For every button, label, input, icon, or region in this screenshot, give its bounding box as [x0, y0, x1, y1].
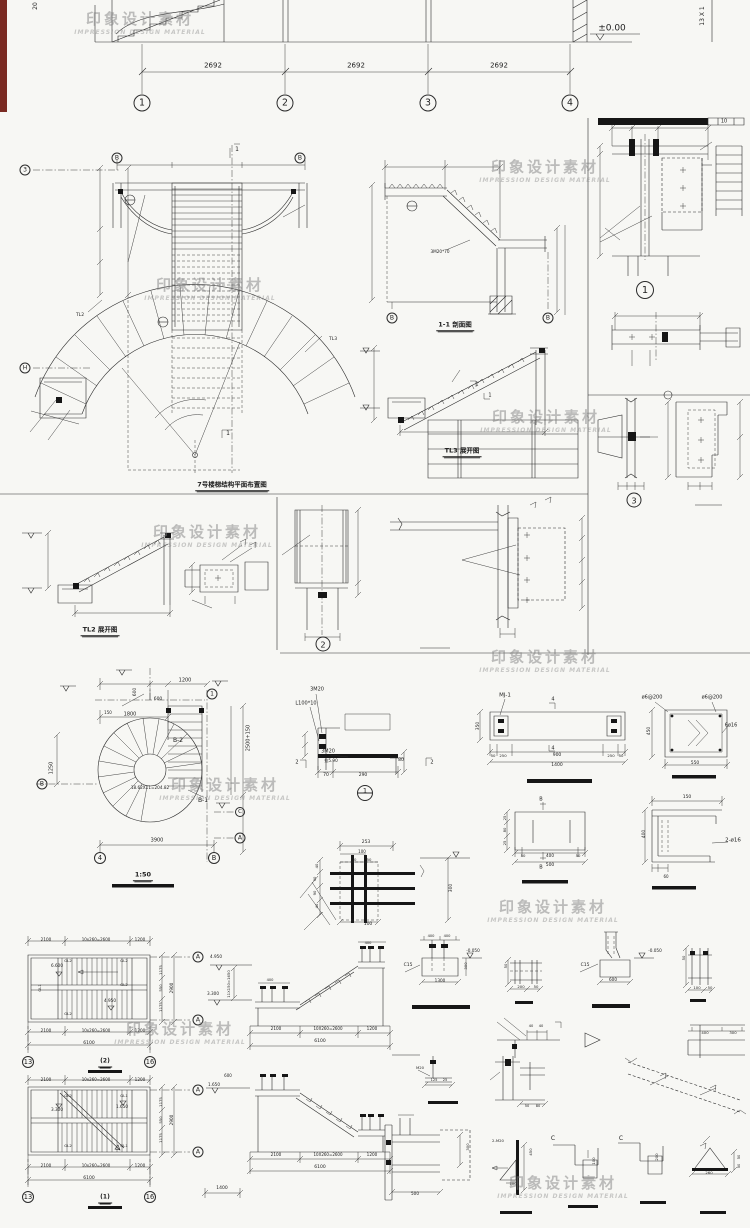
- dim-label: 300: [466, 1143, 470, 1150]
- grid-bubble: H: [20, 363, 31, 374]
- dim-label: 100: [509, 1182, 516, 1186]
- dim-label: -0.050: [466, 949, 480, 953]
- dim-label: 2-ø16: [725, 838, 741, 844]
- dim-label: 50: [504, 964, 508, 969]
- grid-bubble: B: [387, 313, 398, 324]
- dim-label: 450: [648, 727, 653, 736]
- grid-bubble: B: [112, 153, 123, 164]
- dim-label: 10x260=2600: [82, 1029, 111, 1033]
- dim-label: 1200: [179, 679, 192, 684]
- view-caption: TL2 展开图: [81, 626, 120, 636]
- dim-label: 2100: [41, 1029, 52, 1033]
- dim-label: 100: [358, 850, 366, 854]
- dim-label: GL1: [38, 984, 42, 991]
- dim-label: 2100: [41, 1078, 52, 1082]
- dim-label: 10X260=2600: [314, 1153, 343, 1157]
- connection-plan-detail: [612, 312, 740, 366]
- grid-bubble: 3: [420, 95, 437, 112]
- dim-label: 70: [323, 774, 329, 779]
- grid-bubble: 4: [94, 852, 106, 864]
- dim-label: 150: [683, 796, 692, 801]
- dim-label: 2692: [490, 63, 508, 70]
- dim-label: 1175: [159, 1002, 163, 1012]
- dim-label: 50: [352, 858, 357, 862]
- dim-label: 13 X 1: [700, 6, 706, 25]
- bracket-detail: [300, 694, 432, 778]
- dim-label: 2: [430, 761, 433, 766]
- dim-label: 300: [464, 962, 468, 969]
- view-caption: (1): [98, 1195, 112, 1204]
- view-caption: 7号楼梯结构平面布置图: [195, 481, 269, 491]
- grid-bubble: A: [193, 1147, 204, 1158]
- dim-label: 50: [738, 1155, 742, 1160]
- stair-plan-view: [30, 144, 355, 475]
- dim-label: 50: [682, 956, 686, 961]
- dim-label: 400: [701, 1031, 708, 1035]
- dim-label: GL2: [64, 1144, 71, 1148]
- dim-label: 4.950: [104, 999, 116, 1003]
- dim-label: 6.600: [51, 964, 63, 968]
- dim-label: 1175: [159, 965, 163, 975]
- mj1-embedded-plate: [477, 699, 628, 783]
- dim-label: B-1: [198, 798, 208, 804]
- grid-bubble: 1: [207, 689, 218, 700]
- dim-label: 400: [428, 935, 435, 939]
- dim-label: 2: [295, 761, 298, 766]
- dim-label: 2692: [204, 63, 222, 70]
- dim-label: 1: [488, 394, 491, 399]
- grid-bubble: 4: [562, 95, 579, 112]
- stair-plan-upper: [25, 936, 190, 1073]
- dim-label: 600: [609, 978, 617, 982]
- dim-label: 40: [315, 904, 319, 909]
- dim-label: 25: [443, 1079, 448, 1083]
- dim-label: 400: [643, 830, 648, 839]
- grid-bubble: C: [235, 807, 245, 817]
- dim-label: 10X260=2600: [314, 1027, 343, 1031]
- dim-label: 500: [546, 864, 555, 869]
- dim-label: -0.050: [648, 949, 662, 953]
- stair-section-lower: [202, 1074, 393, 1198]
- dim-label: 1250: [50, 762, 55, 775]
- dim-label: 550: [691, 762, 700, 767]
- dim-label: 400: [444, 935, 451, 939]
- dim-label: GL2: [64, 1094, 71, 1098]
- dim-label: 1200: [367, 1027, 378, 1031]
- dim-label: 600: [154, 698, 163, 703]
- dim-label: 80: [398, 759, 404, 764]
- grid-bubble: 16: [144, 1191, 156, 1203]
- dim-label: 550: [159, 984, 163, 991]
- dim-label: 2900: [170, 983, 174, 994]
- dim-label: 100: [592, 1157, 596, 1164]
- stair-plan-lower: [25, 1075, 190, 1209]
- dim-label: 6100: [83, 1042, 94, 1047]
- dim-label: 6100: [314, 1166, 325, 1171]
- dim-label: 100: [364, 923, 373, 928]
- dim-label: 1.650: [208, 1083, 220, 1087]
- dim-label: 2100: [271, 1027, 282, 1031]
- dim-label: B: [539, 866, 542, 871]
- dim-label: 3.300: [51, 1108, 63, 1112]
- section-1-1: [369, 160, 565, 315]
- dim-label: 2100: [41, 1164, 52, 1168]
- grid-bubble: 3: [20, 165, 31, 176]
- dim-label: 1300: [435, 979, 446, 983]
- panel-divider: [0, 118, 750, 655]
- dim-label: 600: [224, 1074, 232, 1078]
- dim-label: 50: [619, 754, 624, 758]
- dim-label: C: [619, 1136, 623, 1142]
- dim-label: 4: [551, 747, 554, 752]
- dim-label: 600: [134, 688, 139, 697]
- detail-bubble: 1: [636, 281, 654, 299]
- dim-label: 1400: [216, 1187, 227, 1192]
- dim-label: 450: [529, 1148, 533, 1155]
- grid-bubble: B: [295, 153, 306, 164]
- foundation-details: [405, 932, 745, 1058]
- dim-label: 10x260=2600: [82, 938, 111, 942]
- dim-label: 2500+150: [247, 725, 252, 751]
- dim-label: 200: [517, 985, 524, 989]
- dim-label: 3M20: [310, 688, 324, 693]
- dim-label: 1200: [367, 1153, 378, 1157]
- grid-bubble: 13: [22, 1056, 34, 1068]
- dim-label: 2100: [41, 938, 52, 942]
- dim-label: B: [539, 798, 542, 803]
- dim-label: 50: [534, 985, 539, 989]
- dim-label: 3M20*70: [430, 250, 449, 254]
- dim-label: 500: [411, 1192, 419, 1196]
- dim-label: GL2: [120, 959, 127, 963]
- grid-bubble: 1: [134, 95, 151, 112]
- dim-label: 3.300: [207, 992, 219, 996]
- dim-label: 2692: [347, 63, 365, 70]
- connection-detail-1: [597, 124, 742, 276]
- dim-label: 253: [362, 841, 371, 846]
- dim-label: 250: [499, 754, 506, 758]
- dim-label: 拉5.90: [324, 759, 338, 763]
- grid-bubble: A: [235, 833, 246, 844]
- dim-label: 10x260=2600: [82, 1164, 111, 1168]
- dim-label: 1: [475, 383, 478, 388]
- dim-label: 290: [359, 774, 368, 779]
- dim-label: 50: [576, 854, 581, 858]
- dim-label: GL2: [64, 1012, 71, 1016]
- dim-label: 40: [315, 864, 319, 869]
- dim-label: 260: [705, 1171, 712, 1175]
- dim-label: ø6@200: [642, 696, 663, 701]
- dim-label: GL1: [120, 1094, 127, 1098]
- grid-bubble: 16: [144, 1056, 156, 1068]
- dim-label: 6100: [83, 1177, 94, 1182]
- dim-label: 1200: [135, 1164, 146, 1168]
- view-caption: TL3 展开图: [443, 447, 482, 457]
- dim-label: ±0.00: [598, 25, 626, 34]
- dim-label: 400: [365, 942, 372, 946]
- dim-label: 1: [226, 431, 230, 437]
- dim-label: 1175: [159, 1133, 163, 1143]
- dim-label: 125: [431, 1079, 438, 1083]
- dim-label: C15: [581, 964, 590, 969]
- dim-label: 20: [33, 2, 39, 10]
- grid-bubble: B: [37, 779, 48, 790]
- dim-label: 1200: [135, 1078, 146, 1082]
- dim-label: 50: [525, 1105, 530, 1109]
- dim-label: GL1: [120, 1144, 127, 1148]
- dim-label: 90: [313, 877, 317, 882]
- dim-label: 2100: [271, 1153, 282, 1157]
- dim-label: 6ø16: [725, 724, 738, 729]
- dim-label: 1400: [551, 764, 562, 769]
- dim-label: 50: [491, 754, 496, 758]
- dim-label: 50: [708, 986, 713, 990]
- dim-label: 900: [553, 754, 562, 759]
- dim-label: 400: [267, 979, 274, 983]
- dim-label: 1200: [135, 938, 146, 942]
- dim-label: GL2: [64, 959, 71, 963]
- grid-bubble: 2: [277, 95, 294, 112]
- dim-label: 350: [477, 722, 482, 731]
- grid-bubble: A: [193, 952, 204, 963]
- view-caption: 1-1 剖面图: [436, 321, 474, 331]
- tl2-development: [22, 530, 268, 617]
- dim-label: M20: [416, 1066, 424, 1070]
- dim-label: 200: [655, 1153, 659, 1160]
- dim-label: 1175: [159, 1097, 163, 1107]
- dim-label: 1800: [124, 713, 137, 718]
- drawing-sheet: 269226922692±0.0013 X 1201011TL3TL23M20*…: [0, 0, 750, 1228]
- dim-label: 2900: [170, 1115, 174, 1126]
- dim-label: 300: [450, 884, 455, 893]
- connection-detail-2: [282, 497, 585, 648]
- dim-label: 90: [313, 891, 317, 896]
- grid-bubble: B: [208, 852, 220, 864]
- dim-label: 4: [551, 698, 554, 703]
- channel-detail: [665, 399, 743, 505]
- channel-section-detail: [642, 796, 728, 890]
- dim-label: MJ-1: [499, 693, 511, 699]
- dim-label: 50: [521, 854, 526, 858]
- view-caption: 1:50: [133, 871, 153, 881]
- dim-label: 6100: [314, 1040, 325, 1045]
- dim-label: TL2: [76, 314, 84, 319]
- dim-label: 1200: [135, 1029, 146, 1033]
- dim-label: 400: [546, 854, 554, 858]
- detail-bubble: 1: [357, 785, 373, 801]
- view-caption: (2): [98, 1059, 112, 1068]
- dim-label: 50: [367, 858, 372, 862]
- dim-label: 2-M20: [492, 1139, 504, 1143]
- detail-bubble: 3: [627, 493, 642, 508]
- dim-label: 1: [235, 147, 239, 153]
- grid-bubble: 13: [22, 1191, 34, 1203]
- dim-label: GL2: [120, 983, 127, 987]
- drawing-canvas: [0, 0, 750, 1228]
- dim-label: 300: [729, 1031, 736, 1035]
- dim-label: C15: [404, 964, 413, 969]
- dim-label: 3M20: [321, 750, 335, 755]
- dim-label: 80: [536, 1105, 541, 1109]
- grid-bubble: A: [193, 1015, 204, 1026]
- dim-label: TL3: [329, 338, 337, 343]
- grid-bubble: B: [543, 313, 554, 324]
- dim-label: 4.950: [210, 955, 222, 959]
- dim-label: 25: [503, 841, 507, 846]
- dim-label: 10x260=2600: [82, 1078, 111, 1082]
- dim-label: 80: [503, 828, 507, 833]
- dim-label: 18.62X11=204.82: [131, 786, 169, 790]
- dim-label: 100: [693, 986, 700, 990]
- dim-label: ø6@200: [702, 696, 723, 701]
- dim-label: L100*10: [295, 702, 316, 707]
- detail-bubble: 2: [316, 637, 331, 652]
- connection-detail-3: [598, 398, 658, 490]
- dim-label: B-2: [173, 738, 183, 744]
- tl3-development: [360, 345, 548, 436]
- dim-label: 60: [663, 875, 668, 879]
- concrete-section-detail: [649, 702, 730, 779]
- base-plate-detail: [504, 802, 588, 884]
- dim-label: 50: [738, 1164, 742, 1169]
- misc-weld-details: [385, 1056, 746, 1214]
- dim-label: 25: [503, 816, 507, 821]
- dim-label: 550: [159, 1116, 163, 1123]
- grid-bubble: A: [193, 1085, 204, 1096]
- dim-label: 250: [607, 754, 614, 758]
- dim-label: 40: [539, 1025, 544, 1029]
- dim-label: 3900: [151, 839, 164, 844]
- dim-label: 40: [529, 1025, 534, 1029]
- dim-label: C: [551, 1136, 555, 1142]
- dim-label: 150: [104, 711, 112, 715]
- dim-label: 11X150=1650: [227, 970, 231, 998]
- dim-label: 10: [721, 120, 727, 125]
- anchor-detail: [300, 841, 470, 930]
- dim-label: 1.650: [116, 1105, 128, 1109]
